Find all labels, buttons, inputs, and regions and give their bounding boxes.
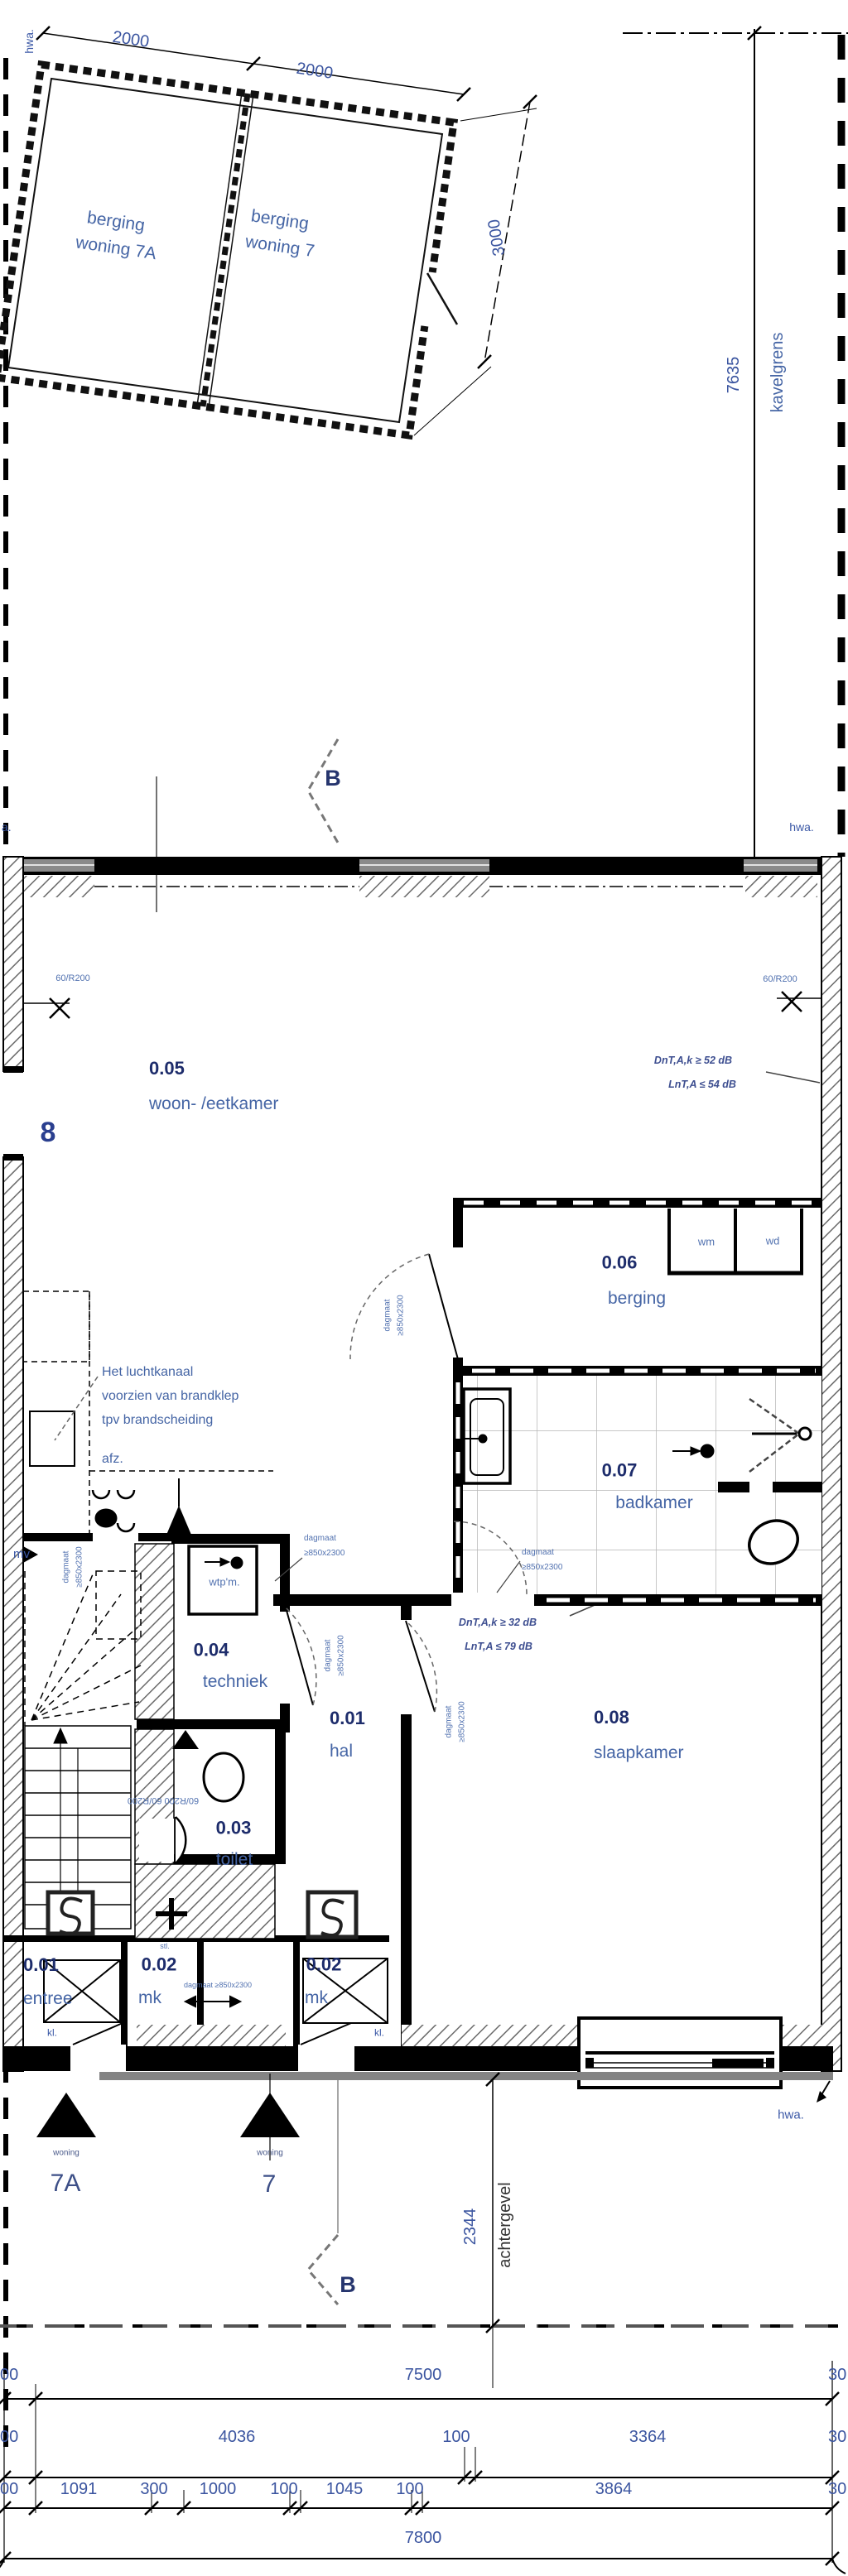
axis-label-8: 8 — [41, 1117, 56, 1148]
entrance-arrow-7a — [36, 2093, 96, 2137]
achtergevel-label: achtergevel — [496, 2182, 514, 2267]
woning-label-7: woning — [257, 2148, 283, 2157]
kavelgrens-label: kavelgrens — [768, 333, 787, 413]
mk-arrow — [185, 1997, 240, 2006]
dagmaat-mk: dagmaat ≥850x2300 — [184, 1981, 252, 1989]
room-number-entree: 0.01 — [23, 1955, 59, 1976]
window-marker-top-left: 60/R200 — [55, 973, 90, 983]
dim-r2-4036: 4036 — [219, 2428, 256, 2446]
room-name-slaapkamer: slaapkamer — [594, 1743, 684, 1763]
rear-facade — [3, 2018, 833, 2103]
section-marker-b-top: B — [325, 766, 341, 791]
room-name-techniek: techniek — [203, 1672, 267, 1692]
kavel-dimension: 7635 — [725, 357, 743, 394]
extractor-label: afz. — [102, 1452, 123, 1467]
room-name-mk1: mk — [138, 1988, 161, 2008]
room-number-badkamer: 0.07 — [602, 1461, 638, 1482]
dagmaat-stair-1: dagmaat — [61, 1551, 70, 1584]
sheds-outline — [0, 65, 457, 435]
hwa-label-top-left: hwa. — [23, 29, 36, 54]
room-number-mk1: 0.02 — [142, 1955, 177, 1976]
dagmaat-hal-2: ≥850x2300 — [336, 1635, 345, 1675]
dagmaat-badkamer-1: dagmaat — [522, 1548, 554, 1557]
stl-label: stl. — [160, 1942, 170, 1950]
room-number-mk2: 0.02 — [306, 1955, 342, 1976]
dryer-label: wd — [766, 1236, 780, 1248]
kl-label-left: kl. — [47, 2027, 57, 2038]
section-marker-b-bottom: B — [340, 2272, 356, 2297]
room-number-woonkamer: 0.05 — [149, 1059, 185, 1079]
dagmaat-techniek-1: dagmaat — [304, 1534, 336, 1543]
staircase — [25, 1571, 141, 1929]
duct-note-line1: Het luchtkanaal — [102, 1365, 193, 1380]
dim-r1-7500: 7500 — [405, 2366, 442, 2384]
mv-label: mv — [13, 1548, 30, 1562]
dim-r2-right: 30 — [828, 2428, 846, 2446]
acoustic-note-54: LnT,A ≤ 54 dB — [668, 1079, 736, 1090]
left-outer-wall — [3, 857, 23, 2071]
dagmaat-badkamer-2: ≥850x2300 — [522, 1563, 562, 1572]
dim-r3-100a: 100 — [270, 2480, 297, 2498]
room-name-toilet: toilet — [216, 1850, 253, 1870]
dim-r3-300: 300 — [140, 2480, 167, 2498]
dagmaat-mk-word: dagmaat — [184, 1981, 213, 1989]
window-marker-symbols — [23, 992, 821, 1018]
dagmaat-hal-1: dagmaat — [323, 1640, 332, 1672]
hwa-label-left: a. — [2, 821, 12, 834]
interior-walls — [3, 1198, 821, 2071]
dagmaat-techniek-2: ≥850x2300 — [304, 1549, 344, 1558]
dim-r1-left: 00 — [0, 2366, 18, 2384]
room-number-hal: 0.01 — [330, 1709, 365, 1729]
room-number-berging: 0.06 — [602, 1253, 638, 1274]
kl-label-right: kl. — [374, 2027, 384, 2038]
dim-r2-left: 00 — [0, 2428, 18, 2446]
room-number-slaapkamer: 0.08 — [594, 1708, 629, 1728]
plan-graphics — [0, 0, 848, 2576]
heatpump-label: wtp'm. — [209, 1577, 239, 1589]
acoustic-note-32: DnT,A,k ≥ 32 dB — [459, 1617, 537, 1628]
room-name-badkamer: badkamer — [615, 1493, 692, 1513]
acoustic-note-52: DnT,A,k ≥ 52 dB — [654, 1055, 732, 1066]
dagmaat-berging-2: ≥850x2300 — [396, 1295, 405, 1335]
dim-r2-100: 100 — [442, 2428, 470, 2446]
dim-r3-left: 00 — [0, 2480, 18, 2498]
room-name-woonkamer: woon- /eetkamer — [149, 1094, 278, 1114]
dim-r2-3364: 3364 — [629, 2428, 667, 2446]
toilet-fixtures — [172, 1730, 243, 1801]
dim-r3-100b: 100 — [396, 2480, 423, 2498]
room-name-hal: hal — [330, 1742, 353, 1761]
dagmaat-slaapkamer-1: dagmaat — [444, 1706, 453, 1738]
dagmaat-stair-2: ≥850x2300 — [75, 1546, 84, 1587]
hwa-label-right: hwa. — [789, 821, 814, 834]
facade-hatch — [17, 876, 94, 897]
floor-plan-sheet: hwa. a. hwa. hwa. 7635 kavelgrens 2344 a… — [0, 0, 848, 2576]
room-name-mk2: mk — [305, 1988, 328, 2008]
dim-r3-right: 30 — [828, 2480, 846, 2498]
duct-note-line3: tpv brandscheiding — [102, 1413, 213, 1428]
room-number-toilet: 0.03 — [216, 1819, 252, 1839]
duct-note-line2: voorzien van brandklep — [102, 1389, 238, 1404]
unit-number-7a: 7A — [51, 2170, 81, 2198]
room-name-berging: berging — [608, 1289, 666, 1309]
unit-number-7: 7 — [263, 2170, 277, 2199]
dagmaat-slaapkamer-2: ≥850x2300 — [457, 1701, 466, 1742]
dim-r3-1091: 1091 — [60, 2480, 98, 2498]
room-name-entree: entree — [23, 1989, 73, 2009]
acoustic-note-79: LnT,A ≤ 79 dB — [465, 1641, 532, 1652]
woning-label-7a: woning — [53, 2148, 79, 2157]
window-marker-pair: 60/R200 60/R200 — [128, 1795, 199, 1805]
dim-r4-7800: 7800 — [405, 2529, 442, 2547]
right-outer-wall — [821, 857, 841, 2071]
dim-r3-3864: 3864 — [595, 2480, 633, 2498]
hwa-label-bottom: hwa. — [778, 2109, 804, 2123]
dagmaat-mk-size: ≥850x2300 — [215, 1981, 252, 1989]
washer-label: wm — [698, 1237, 715, 1249]
dim-r3-1000: 1000 — [200, 2480, 237, 2498]
dim-r3-1045: 1045 — [326, 2480, 364, 2498]
dagmaat-berging-1: dagmaat — [383, 1300, 392, 1332]
dim-r1-right: 30 — [828, 2366, 846, 2384]
window-marker-top-right: 60/R200 — [763, 974, 797, 984]
room-number-techniek: 0.04 — [194, 1641, 229, 1661]
rear-offset-dimension: 2344 — [461, 2208, 479, 2246]
